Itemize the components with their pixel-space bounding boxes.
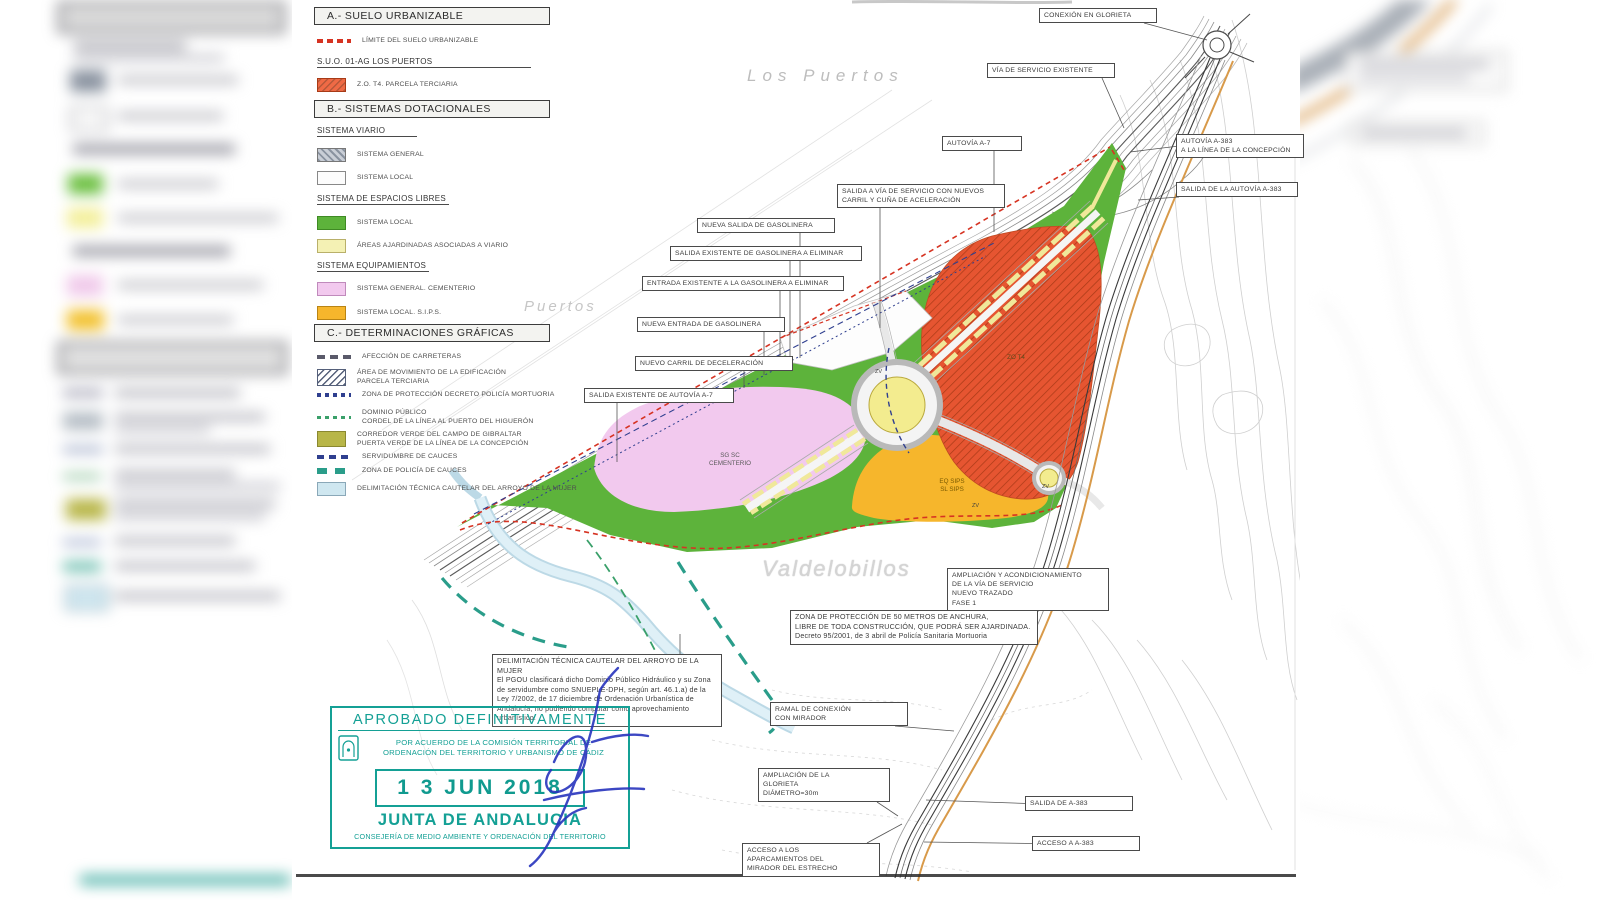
legend-item-viario-local: SISTEMA LOCAL: [317, 171, 413, 185]
roundabout-main: [851, 359, 943, 451]
legend-item-sips: SISTEMA LOCAL. S.I.P.S.: [317, 306, 441, 320]
legend-item-zo-t4: Z.O. T4. PARCELA TERCIARIA: [317, 78, 458, 92]
callout-autovia-a383: AUTOVÍA A-383 A LA LÍNEA DE LA CONCEPCIÓ…: [1176, 134, 1304, 158]
lightblue-swatch: [317, 482, 346, 496]
red-dash-swatch: [317, 39, 351, 43]
leader-acceso-a383: [924, 842, 1035, 844]
callout-autovia-a7: AUTOVÍA A-7: [942, 136, 1022, 151]
gray-dash-swatch: [317, 355, 351, 359]
callout-salida-a383: SALIDA DE A-383: [1025, 796, 1133, 811]
teal-dash-swatch: [317, 468, 351, 474]
blurred-curves: [1291, 0, 1600, 900]
zone-label-cementerio: SG SC CEMENTERIO: [700, 452, 760, 468]
callout-entrada-existente-gas: ENTRADA EXISTENTE A LA GASOLINERA A ELIM…: [642, 276, 844, 291]
white-swatch: [317, 171, 346, 185]
callout-zona-proteccion: ZONA DE PROTECCIÓN DE 50 METROS DE ANCHU…: [790, 610, 1038, 645]
legend-label: AFECCIÓN DE CARRETERAS: [362, 352, 461, 361]
callout-ramal-mirador: RAMAL DE CONEXIÓN CON MIRADOR: [770, 702, 908, 726]
place-label-los-puertos: Los Puertos: [747, 66, 904, 86]
place-label-puertos: Puertos: [524, 298, 597, 315]
olive-swatch: [317, 431, 346, 447]
legend-label: LÍMITE DEL SUELO URBANIZABLE: [362, 36, 478, 45]
legend-label: SISTEMA LOCAL: [357, 173, 413, 182]
callout-salida-autovia-a383: SALIDA DE LA AUTOVÍA A-383: [1176, 182, 1298, 197]
blue-dash-swatch: [317, 455, 351, 459]
callout-nueva-entrada-gas: NUEVA ENTRADA DE GASOLINERA: [637, 317, 785, 332]
callout-acceso-a383: ACCESO A A-383: [1032, 836, 1140, 851]
stamp-agreement: POR ACUERDO DE LA COMISIÓN TERRITORIAL D…: [365, 738, 622, 759]
callout-nueva-salida-gas: NUEVA SALIDA DE GASOLINERA: [697, 218, 835, 233]
green-swatch: [317, 216, 346, 230]
legend-label: ZONA DE POLICÍA DE CAUCES: [362, 466, 467, 475]
legend-label: SISTEMA LOCAL: [357, 218, 413, 227]
legend-item-policia: ZONA DE POLICÍA DE CAUCES: [317, 466, 467, 475]
legend-label: ZONA DE PROTECCIÓN DECRETO POLICÍA MORTU…: [362, 390, 554, 399]
leader-via-servicio: [1102, 78, 1124, 128]
blurred-right-panel: [1290, 0, 1600, 900]
legend-sub-equip: SISTEMA EQUIPAMIENTOS: [317, 261, 429, 272]
callout-salida-via-servicio: SALIDA A VÍA DE SERVICIO CON NUEVOS CARR…: [837, 184, 1005, 208]
glorieta-top: [1185, 14, 1254, 78]
legend-item-libres-local: SISTEMA LOCAL: [317, 216, 413, 230]
zone-label-zv: ZV: [875, 369, 882, 375]
orange-swatch: [317, 306, 346, 320]
legend-sub-libres: SISTEMA DE ESPACIOS LIBRES: [317, 194, 449, 205]
callout-acceso-aparcamientos: ACCESO A LOS APARCAMIENTOS DEL MIRADOR D…: [742, 843, 880, 877]
leader-acceso-aparcamientos: [867, 824, 902, 843]
legend-item-mortuoria: ZONA DE PROTECCIÓN DECRETO POLICÍA MORTU…: [317, 390, 554, 399]
legend-label: SISTEMA GENERAL: [357, 150, 424, 159]
gray-hatch-swatch: [317, 148, 346, 162]
place-label-valdelobillos: Valdelobillos: [762, 556, 911, 582]
stamp-dept: CONSEJERÍA DE MEDIO AMBIENTE Y ORDENACIÓ…: [338, 832, 622, 841]
leader-conexion-glorieta: [1144, 23, 1207, 40]
legend-label: SISTEMA LOCAL. S.I.P.S.: [357, 308, 441, 317]
callout-ampliacion-via: AMPLIACIÓN Y ACONDICIONAMIENTO DE LA VÍA…: [947, 568, 1109, 611]
plan-sheet: A.- SUELO URBANIZABLE LÍMITE DEL SUELO U…: [292, 0, 1300, 900]
pale-yellow-swatch: [317, 239, 346, 253]
green-dash-swatch: [317, 416, 351, 419]
legend-label: SISTEMA GENERAL. CEMENTERIO: [357, 284, 475, 293]
legend-header-a: A.- SUELO URBANIZABLE: [314, 7, 550, 25]
legend-sub-suo: S.U.O. 01-AG LOS PUERTOS: [317, 57, 531, 68]
legend-item-delimitacion: DELIMITACIÓN TÉCNICA CAUTELAR DEL ARROYO…: [317, 482, 577, 496]
stamp-date: 1 3 JUN 2018: [375, 769, 585, 807]
zone-label-zv: ZV: [972, 503, 979, 509]
legend-item-ajardinadas: ÁREAS AJARDINADAS ASOCIADAS A VIARIO: [317, 239, 508, 253]
legend-label: ÁREAS AJARDINADAS ASOCIADAS A VIARIO: [357, 241, 508, 250]
zone-label-zo-t4: ZO T4: [998, 354, 1034, 362]
stamp-org: JUNTA DE ANDALUCIA: [338, 811, 622, 830]
legend-label: CORREDOR VERDE DEL CAMPO DE GIBRALTAR PU…: [357, 430, 529, 448]
stamp-title: APROBADO DEFINITIVAMENTE: [338, 712, 622, 731]
legend-item-servidumbre: SERVIDUMBRE DE CAUCES: [317, 452, 457, 461]
callout-via-servicio: VÍA DE SERVICIO EXISTENTE: [987, 63, 1115, 78]
legend-item-area-mov: ÁREA DE MOVIMIENTO DE LA EDIFICACIÓN PAR…: [317, 368, 506, 386]
legend-label: Z.O. T4. PARCELA TERCIARIA: [357, 80, 458, 89]
legend-header-c: C.- DETERMINACIONES GRÁFICAS: [314, 324, 550, 342]
legend-item-dominio: DOMINIO PÚBLICO CORDEL DE LA LÍNEA AL PU…: [317, 408, 534, 426]
zone-label-zv: ZV: [1042, 484, 1049, 490]
legend-label: ÁREA DE MOVIMIENTO DE LA EDIFICACIÓN PAR…: [357, 368, 506, 386]
red-terciaria-swatch: [317, 78, 346, 92]
legend-item-viario-general: SISTEMA GENERAL: [317, 148, 424, 162]
blurred-map-decoration: [1291, 0, 1600, 900]
legend-item-limite: LÍMITE DEL SUELO URBANIZABLE: [317, 36, 478, 45]
legend-header-b: B.- SISTEMAS DOTACIONALES: [314, 100, 550, 118]
diag-hatch-swatch: [317, 369, 346, 386]
callout-ampliacion-glorieta: AMPLIACIÓN DE LA GLORIETA DIÁMETRO=30m: [758, 768, 890, 802]
legend-label: DELIMITACIÓN TÉCNICA CAUTELAR DEL ARROYO…: [357, 484, 577, 493]
legend-label: SERVIDUMBRE DE CAUCES: [362, 452, 457, 461]
junta-emblem-icon: [338, 734, 360, 762]
callout-nuevo-carril: NUEVO CARRIL DE DECELERACIÓN: [635, 356, 793, 371]
legend-label: DOMINIO PÚBLICO CORDEL DE LA LÍNEA AL PU…: [362, 408, 534, 426]
blurred-left-panel: [0, 0, 293, 900]
blue-dot-swatch: [317, 393, 351, 397]
callout-conexion-glorieta: CONEXIÓN EN GLORIETA: [1039, 8, 1157, 23]
legend-item-corredor: CORREDOR VERDE DEL CAMPO DE GIBRALTAR PU…: [317, 430, 529, 448]
leader-ampliacion-glorieta: [877, 802, 898, 816]
legend-sub-viario: SISTEMA VIARIO: [317, 126, 417, 137]
callout-salida-existente-gas: SALIDA EXISTENTE DE GASOLINERA A ELIMINA…: [670, 246, 862, 261]
callout-salida-existente-autovia: SALIDA EXISTENTE DE AUTOVÍA A-7: [584, 388, 734, 403]
approval-stamp: APROBADO DEFINITIVAMENTE POR ACUERDO DE …: [330, 706, 630, 849]
legend-item-cementerio: SISTEMA GENERAL. CEMENTERIO: [317, 282, 475, 296]
blurred-legend-decoration: [0, 0, 292, 900]
leader-ramal-mirador: [895, 726, 954, 731]
legend-item-afeccion: AFECCIÓN DE CARRETERAS: [317, 352, 461, 361]
leader-salida-a383: [926, 800, 1028, 804]
pink-swatch: [317, 282, 346, 296]
zone-label-eq-sips: EQ SIPS SL SIPS: [924, 478, 980, 494]
scanned-planning-document: A.- SUELO URBANIZABLE LÍMITE DEL SUELO U…: [0, 0, 1600, 900]
